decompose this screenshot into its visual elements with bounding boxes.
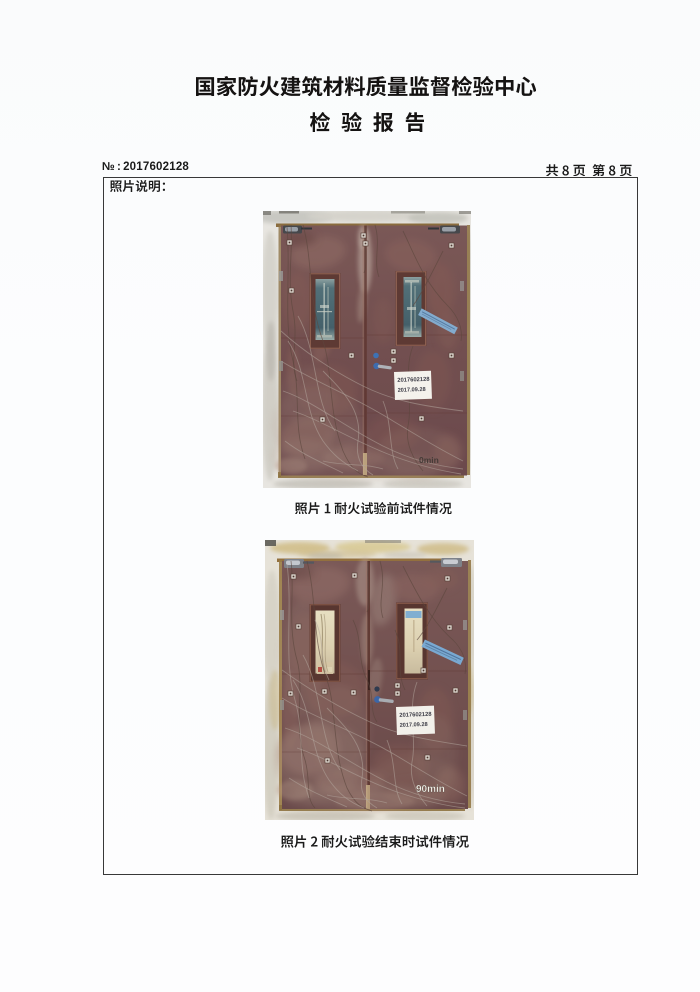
svg-text:2017602128: 2017602128 [397, 377, 430, 384]
svg-text:2017602128: 2017602128 [399, 712, 432, 719]
svg-text:2017.09.28: 2017.09.28 [398, 387, 426, 394]
svg-text:2017.09.28: 2017.09.28 [400, 722, 428, 729]
svg-text:90min: 90min [416, 784, 445, 795]
svg-text:0min: 0min [419, 455, 439, 465]
